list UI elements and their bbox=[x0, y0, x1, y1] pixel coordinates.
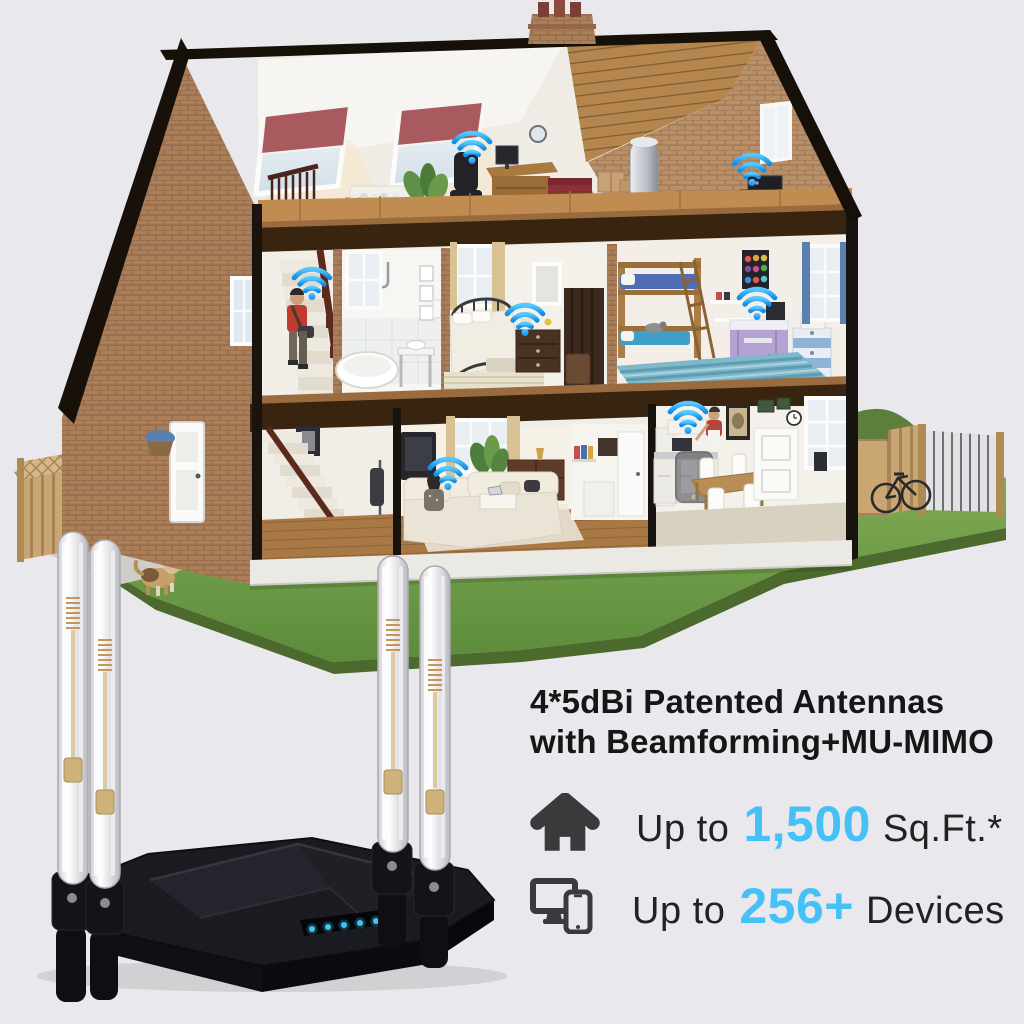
suitcase bbox=[566, 354, 590, 384]
bathroom-window bbox=[347, 252, 381, 308]
house-cutaway-illustration bbox=[0, 0, 1024, 1024]
bathroom-pictures bbox=[420, 266, 433, 320]
bedroom-bench bbox=[486, 358, 516, 372]
towel bbox=[433, 300, 441, 318]
kids-room bbox=[616, 242, 852, 400]
wall-frame bbox=[534, 264, 560, 304]
router-antenna bbox=[52, 532, 92, 1002]
kitchen-window bbox=[806, 398, 848, 471]
chimney bbox=[528, 0, 596, 44]
bathtub bbox=[336, 352, 398, 388]
memo-board bbox=[758, 400, 774, 412]
back-garden bbox=[852, 409, 1004, 518]
second-floor bbox=[258, 234, 852, 404]
right-cut-post bbox=[846, 210, 858, 562]
partition-wall bbox=[571, 424, 648, 520]
left-cut-post bbox=[252, 204, 262, 566]
router-antenna bbox=[86, 540, 124, 1000]
desktop-monitor bbox=[496, 146, 518, 164]
wall-clock bbox=[787, 411, 801, 425]
router-antenna bbox=[372, 556, 412, 948]
router-antenna bbox=[414, 566, 454, 968]
router-product-hero: 4*5dBi Patented Antennas with Beamformin… bbox=[0, 0, 1024, 1024]
laptop bbox=[488, 486, 502, 495]
kids-window bbox=[802, 242, 848, 324]
dots-poster bbox=[742, 250, 769, 289]
interior-door bbox=[618, 432, 644, 516]
bathroom bbox=[336, 250, 441, 398]
microwave bbox=[672, 438, 692, 451]
gable-window bbox=[762, 103, 790, 162]
front-door bbox=[170, 422, 204, 522]
back-door bbox=[754, 428, 798, 500]
round-mirror bbox=[530, 126, 546, 142]
skylight-window bbox=[256, 106, 349, 194]
